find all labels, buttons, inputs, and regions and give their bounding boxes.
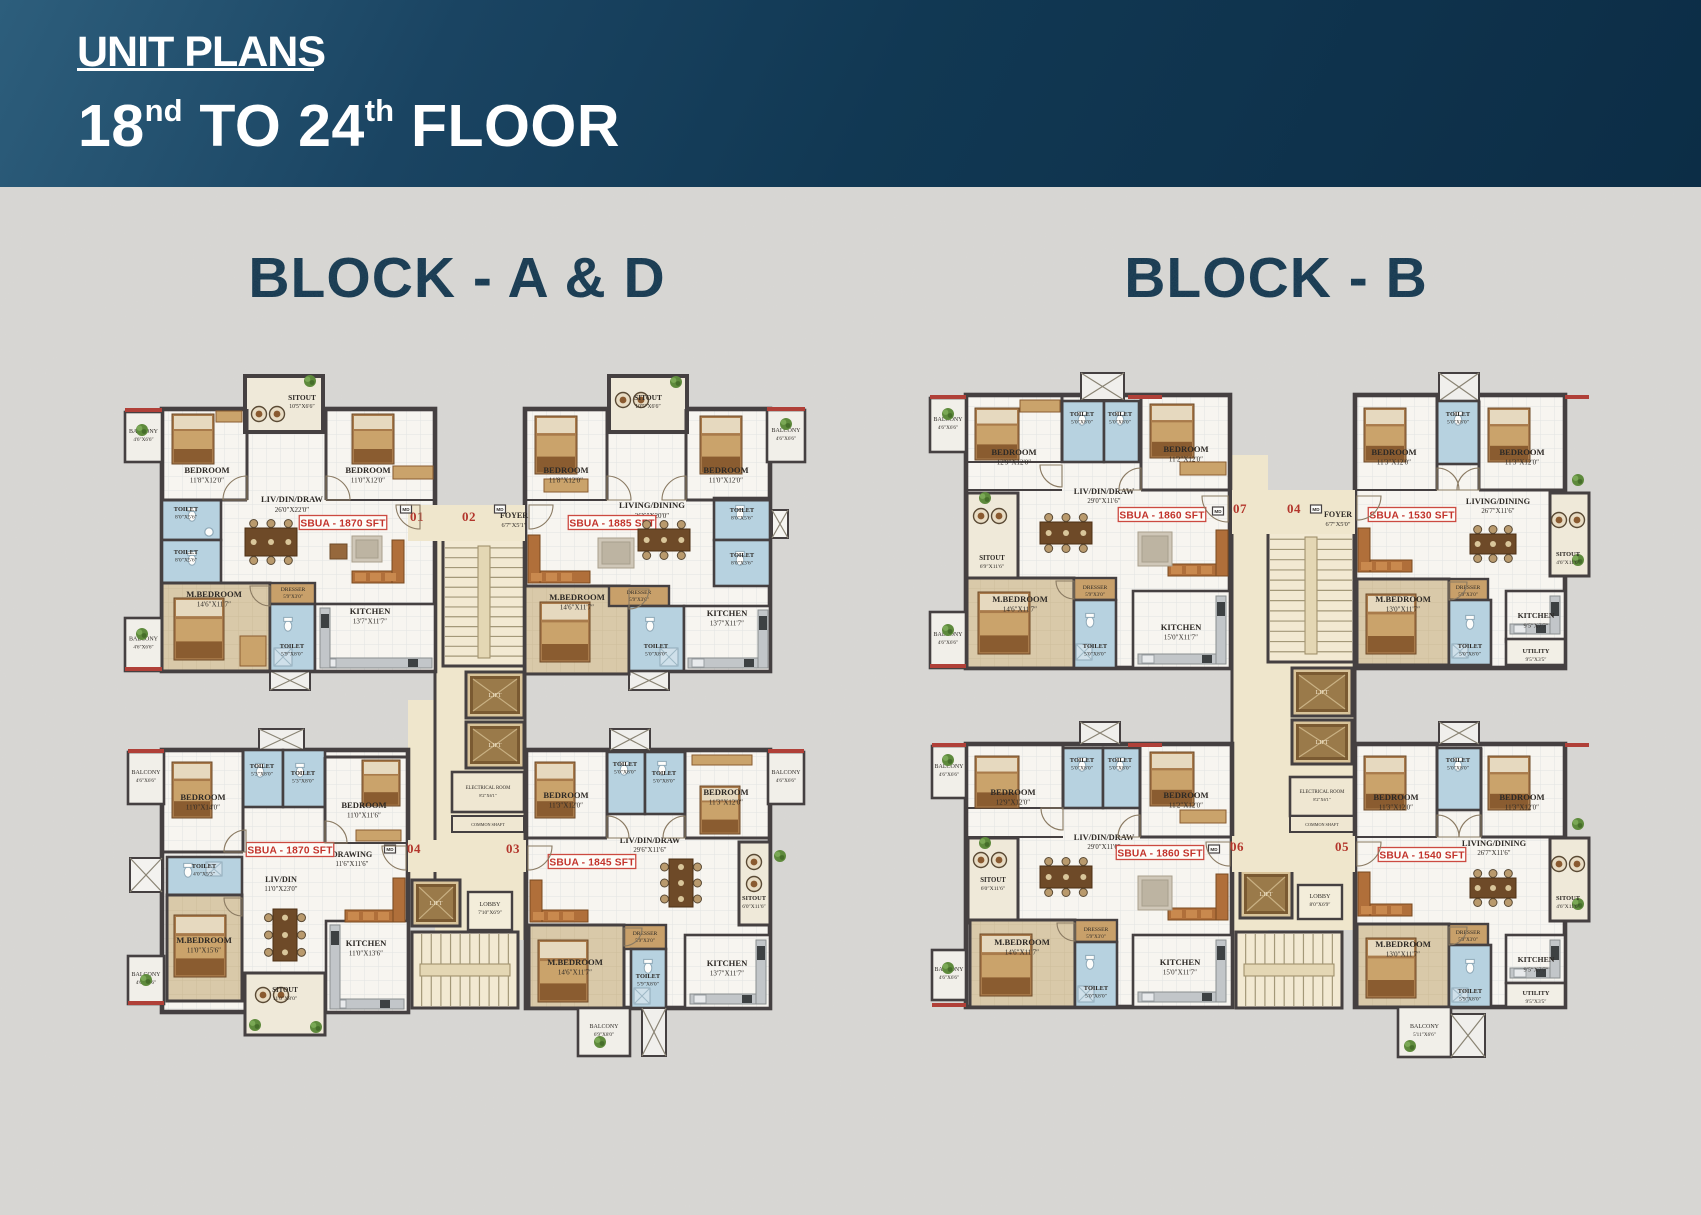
svg-text:KITCHEN: KITCHEN bbox=[346, 938, 387, 948]
svg-text:6'0″X11'6″: 6'0″X11'6″ bbox=[981, 886, 1006, 892]
svg-text:BALCONY: BALCONY bbox=[771, 770, 801, 776]
svg-text:TOILET: TOILET bbox=[1070, 757, 1095, 764]
svg-text:5'0″X8'0″: 5'0″X8'0″ bbox=[1071, 420, 1094, 426]
svg-text:4'6″X6'6″: 4'6″X6'6″ bbox=[939, 772, 959, 778]
svg-text:MD: MD bbox=[386, 847, 394, 852]
svg-text:14'6″X11'7″: 14'6″X11'7″ bbox=[197, 601, 231, 609]
svg-text:M.BEDROOM: M.BEDROOM bbox=[1375, 594, 1431, 604]
svg-text:10'5″X6'6″: 10'5″X6'6″ bbox=[289, 404, 315, 410]
svg-text:13'7″X11'7″: 13'7″X11'7″ bbox=[710, 620, 744, 628]
svg-text:5'0″X8'0″: 5'0″X8'0″ bbox=[1109, 766, 1132, 772]
svg-text:DRESSER: DRESSER bbox=[1456, 585, 1481, 591]
svg-text:6'9″X11'6″: 6'9″X11'6″ bbox=[980, 564, 1005, 570]
svg-text:BEDROOM: BEDROOM bbox=[990, 787, 1035, 797]
svg-text:5'9″X3'0″: 5'9″X3'0″ bbox=[283, 595, 303, 600]
svg-text:5'0″X8'0″: 5'0″X8'0″ bbox=[1109, 420, 1132, 426]
svg-text:DRESSER: DRESSER bbox=[633, 931, 658, 937]
svg-text:4'6″X6'6″: 4'6″X6'6″ bbox=[133, 437, 153, 443]
svg-text:BEDROOM: BEDROOM bbox=[1371, 447, 1416, 457]
svg-text:8'0″X5'6″: 8'0″X5'6″ bbox=[175, 558, 198, 564]
svg-text:TOILET: TOILET bbox=[1084, 985, 1109, 992]
svg-text:BEDROOM: BEDROOM bbox=[1499, 447, 1544, 457]
svg-text:4'6″X6'6″: 4'6″X6'6″ bbox=[136, 778, 156, 784]
svg-text:8'0″X3'6″: 8'0″X3'6″ bbox=[731, 561, 754, 567]
svg-text:TOILET: TOILET bbox=[730, 552, 755, 559]
svg-text:8'0″X5'6″: 8'0″X5'6″ bbox=[175, 515, 198, 521]
svg-text:M.BEDROOM: M.BEDROOM bbox=[186, 589, 242, 599]
svg-text:TOILET: TOILET bbox=[1083, 643, 1108, 650]
svg-text:11'0″X14'0″: 11'0″X14'0″ bbox=[186, 804, 220, 812]
svg-text:8'0″X6'9″: 8'0″X6'9″ bbox=[1309, 902, 1330, 908]
svg-text:SITOUT: SITOUT bbox=[980, 877, 1006, 884]
svg-text:MD: MD bbox=[402, 507, 410, 512]
svg-text:COMMON SHAFT: COMMON SHAFT bbox=[471, 822, 505, 827]
svg-text:04: 04 bbox=[407, 841, 421, 856]
svg-text:SITOUT: SITOUT bbox=[634, 393, 662, 402]
svg-text:11'3″X12'0″: 11'3″X12'0″ bbox=[1505, 804, 1539, 812]
svg-text:TOILET: TOILET bbox=[613, 761, 638, 768]
svg-text:TOILET: TOILET bbox=[730, 507, 755, 514]
svg-text:6'7″X5'0″: 6'7″X5'0″ bbox=[1325, 521, 1350, 528]
svg-text:LIV/DIN/DRAW: LIV/DIN/DRAW bbox=[261, 494, 323, 504]
svg-text:TOILET: TOILET bbox=[174, 549, 199, 556]
svg-text:5'9″X8'0″: 5'9″X8'0″ bbox=[1459, 997, 1482, 1003]
svg-text:5'0″X8'0″: 5'0″X8'0″ bbox=[614, 770, 637, 776]
svg-text:SITOUT: SITOUT bbox=[979, 555, 1005, 562]
svg-text:TOILET: TOILET bbox=[1458, 643, 1483, 650]
svg-text:11'0″X11'6″: 11'0″X11'6″ bbox=[347, 812, 381, 820]
svg-text:UTILITY: UTILITY bbox=[1523, 648, 1550, 655]
svg-text:8'2″X6'1″: 8'2″X6'1″ bbox=[479, 793, 497, 798]
svg-text:26'7″X11'6″: 26'7″X11'6″ bbox=[1481, 508, 1514, 515]
svg-text:BEDROOM: BEDROOM bbox=[184, 465, 229, 475]
svg-text:UTILITY: UTILITY bbox=[1523, 990, 1550, 997]
svg-text:LOBBY: LOBBY bbox=[480, 901, 502, 908]
svg-text:11'0″X15'6″: 11'0″X15'6″ bbox=[187, 947, 221, 955]
svg-text:TOILET: TOILET bbox=[291, 770, 316, 777]
svg-text:13'7″X11'7″: 13'7″X11'7″ bbox=[353, 618, 387, 626]
svg-text:29'6″X11'6″: 29'6″X11'6″ bbox=[633, 847, 666, 854]
svg-text:BEDROOM: BEDROOM bbox=[1499, 792, 1544, 802]
svg-text:ELECTRICAL ROOM: ELECTRICAL ROOM bbox=[1300, 790, 1345, 795]
svg-text:LIFT: LIFT bbox=[1315, 739, 1328, 746]
svg-text:DRESSER: DRESSER bbox=[281, 587, 306, 593]
svg-text:4'6″X11'6″: 4'6″X11'6″ bbox=[1556, 560, 1580, 566]
svg-text:26'0″X22'0″: 26'0″X22'0″ bbox=[275, 506, 309, 514]
svg-text:4'6″X6'6″: 4'6″X6'6″ bbox=[938, 425, 958, 431]
svg-text:03: 03 bbox=[506, 841, 520, 856]
svg-text:LIFT: LIFT bbox=[1315, 689, 1328, 696]
svg-text:5'9″X3'0″: 5'9″X3'0″ bbox=[1085, 593, 1105, 598]
svg-text:DRESSER: DRESSER bbox=[1083, 585, 1108, 591]
svg-text:BEDROOM: BEDROOM bbox=[991, 447, 1036, 457]
svg-text:COMMON SHAFT: COMMON SHAFT bbox=[1305, 822, 1339, 827]
svg-text:5'0″X8'0″: 5'0″X8'0″ bbox=[1085, 994, 1108, 1000]
svg-text:BEDROOM: BEDROOM bbox=[180, 792, 225, 802]
svg-text:LIFT: LIFT bbox=[429, 900, 442, 907]
svg-text:M.BEDROOM: M.BEDROOM bbox=[992, 594, 1048, 604]
svg-text:11'2″X12'0″: 11'2″X12'0″ bbox=[1169, 802, 1203, 810]
svg-text:LIV/DIN/DRAW: LIV/DIN/DRAW bbox=[1074, 487, 1135, 496]
svg-text:4'6″X6'6″: 4'6″X6'6″ bbox=[939, 975, 959, 981]
svg-text:BALCONY: BALCONY bbox=[1410, 1024, 1440, 1030]
svg-text:SITOUT: SITOUT bbox=[1556, 551, 1581, 558]
svg-text:LIVING/DINING: LIVING/DINING bbox=[619, 500, 685, 510]
svg-text:11'3″X12'0″: 11'3″X12'0″ bbox=[1379, 804, 1413, 812]
svg-text:KITCHEN: KITCHEN bbox=[707, 958, 748, 968]
svg-text:SBUA - 1845 SFT: SBUA - 1845 SFT bbox=[549, 857, 635, 868]
svg-text:TOILET: TOILET bbox=[636, 973, 661, 980]
svg-text:FOYER: FOYER bbox=[500, 511, 528, 520]
svg-text:BEDROOM: BEDROOM bbox=[543, 790, 588, 800]
svg-text:DRAWING: DRAWING bbox=[332, 850, 373, 859]
svg-text:5'0″X8'0″: 5'0″X8'0″ bbox=[1071, 766, 1094, 772]
svg-text:BEDROOM: BEDROOM bbox=[543, 465, 588, 475]
svg-text:11'0″X23'0″: 11'0″X23'0″ bbox=[264, 886, 297, 893]
svg-text:11'3″X12'0″: 11'3″X12'0″ bbox=[1505, 459, 1539, 467]
svg-text:TOILET: TOILET bbox=[1446, 411, 1471, 418]
svg-text:15'0″X11'7″: 15'0″X11'7″ bbox=[1163, 969, 1197, 977]
svg-text:BEDROOM: BEDROOM bbox=[1163, 790, 1208, 800]
svg-text:BEDROOM: BEDROOM bbox=[1163, 444, 1208, 454]
svg-text:KITCHEN: KITCHEN bbox=[1518, 611, 1555, 620]
svg-text:4'6″X6'6″: 4'6″X6'6″ bbox=[776, 778, 796, 784]
svg-text:13'0″X11'7″: 13'0″X11'7″ bbox=[1386, 951, 1420, 959]
svg-text:ELECTRICAL ROOM: ELECTRICAL ROOM bbox=[466, 786, 511, 791]
svg-text:10'5″X6'6″: 10'5″X6'6″ bbox=[635, 404, 661, 410]
svg-text:LIVING/DINING: LIVING/DINING bbox=[1466, 497, 1531, 506]
svg-text:TOILET: TOILET bbox=[1070, 411, 1095, 418]
svg-text:12'9″X12'0″: 12'9″X12'0″ bbox=[996, 799, 1030, 807]
svg-text:7'10″X6'9″: 7'10″X6'9″ bbox=[478, 910, 502, 916]
svg-text:05: 05 bbox=[1335, 839, 1349, 854]
svg-text:13'7″X11'7″: 13'7″X11'7″ bbox=[710, 970, 744, 978]
svg-text:5'0″X8'0″: 5'0″X8'0″ bbox=[1459, 652, 1482, 658]
svg-text:12'9″X12'0″: 12'9″X12'0″ bbox=[997, 459, 1031, 467]
svg-text:6'0″X11'6″: 6'0″X11'6″ bbox=[742, 904, 766, 910]
svg-text:11'8″X12'0″: 11'8″X12'0″ bbox=[190, 477, 224, 485]
svg-text:M.BEDROOM: M.BEDROOM bbox=[549, 592, 605, 602]
svg-text:DRESSER: DRESSER bbox=[1456, 930, 1481, 936]
svg-text:11'3″X12'0″: 11'3″X12'0″ bbox=[1377, 459, 1411, 467]
svg-text:TOILET: TOILET bbox=[1108, 411, 1133, 418]
svg-text:4'6″X6'6″: 4'6″X6'6″ bbox=[938, 640, 958, 646]
svg-text:13'0″X11'7″: 13'0″X11'7″ bbox=[1386, 606, 1420, 614]
svg-text:MD: MD bbox=[1214, 509, 1222, 514]
svg-text:5'0″X8'0″: 5'0″X8'0″ bbox=[653, 779, 676, 785]
svg-text:07: 07 bbox=[1233, 501, 1247, 516]
svg-text:SBUA - 1870 SFT: SBUA - 1870 SFT bbox=[247, 845, 333, 856]
svg-text:11'0″X12'0″: 11'0″X12'0″ bbox=[709, 477, 743, 485]
svg-text:M.BEDROOM: M.BEDROOM bbox=[1375, 939, 1431, 949]
svg-text:14'6″X11'7″: 14'6″X11'7″ bbox=[558, 969, 592, 977]
svg-text:11'8″X12'0″: 11'8″X12'0″ bbox=[549, 477, 583, 485]
svg-text:9'5″X3'5″: 9'5″X3'5″ bbox=[1525, 999, 1546, 1005]
svg-text:TOILET: TOILET bbox=[1458, 988, 1483, 995]
svg-text:11'0″X12'0″: 11'0″X12'0″ bbox=[351, 477, 385, 485]
svg-text:11'3″X12'0″: 11'3″X12'0″ bbox=[709, 799, 743, 807]
svg-text:BEDROOM: BEDROOM bbox=[1373, 792, 1418, 802]
svg-text:5'0″X8'0″: 5'0″X8'0″ bbox=[1084, 652, 1107, 658]
svg-text:BEDROOM: BEDROOM bbox=[345, 465, 390, 475]
svg-text:SITOUT: SITOUT bbox=[272, 987, 298, 994]
svg-text:11'3″X12'0″: 11'3″X12'0″ bbox=[549, 802, 583, 810]
svg-text:MD: MD bbox=[1210, 847, 1218, 852]
svg-text:TOILET: TOILET bbox=[1446, 757, 1471, 764]
svg-text:9'5″X3'5″: 9'5″X3'5″ bbox=[1525, 657, 1546, 663]
svg-text:4'0″X5'3″: 4'0″X5'3″ bbox=[193, 872, 216, 878]
svg-text:LIFT: LIFT bbox=[488, 742, 501, 749]
svg-text:5'3″X8'0″: 5'3″X8'0″ bbox=[251, 772, 274, 778]
svg-text:8'2″X6'1″: 8'2″X6'1″ bbox=[1313, 797, 1331, 802]
svg-text:06: 06 bbox=[1230, 839, 1244, 854]
svg-text:11'0″X8'0″: 11'0″X8'0″ bbox=[273, 996, 298, 1002]
svg-text:KITCHEN: KITCHEN bbox=[350, 606, 391, 616]
svg-text:SBUA - 1860 SFT: SBUA - 1860 SFT bbox=[1117, 848, 1203, 859]
svg-text:KITCHEN: KITCHEN bbox=[1518, 955, 1555, 964]
svg-text:SITOUT: SITOUT bbox=[288, 393, 316, 402]
svg-text:SITOUT: SITOUT bbox=[742, 895, 767, 902]
svg-text:4'6″X6'6″: 4'6″X6'6″ bbox=[776, 436, 796, 442]
svg-text:14'6″X11'7″: 14'6″X11'7″ bbox=[560, 604, 594, 612]
svg-text:8'0″X5'6″: 8'0″X5'6″ bbox=[731, 516, 754, 522]
svg-text:DRESSER: DRESSER bbox=[1084, 927, 1109, 933]
svg-text:M.BEDROOM: M.BEDROOM bbox=[176, 935, 232, 945]
svg-text:MD: MD bbox=[1312, 507, 1320, 512]
svg-text:TOILET: TOILET bbox=[1108, 757, 1133, 764]
svg-text:M.BEDROOM: M.BEDROOM bbox=[994, 937, 1050, 947]
svg-text:5'9″X8'0″: 5'9″X8'0″ bbox=[281, 652, 304, 658]
svg-text:15'0″X11'7″: 15'0″X11'7″ bbox=[1164, 634, 1198, 642]
svg-text:11'6″X11'6″: 11'6″X11'6″ bbox=[336, 861, 369, 868]
svg-text:KITCHEN: KITCHEN bbox=[1160, 957, 1201, 967]
svg-text:BEDROOM: BEDROOM bbox=[703, 787, 748, 797]
svg-text:SBUA - 1870 SFT: SBUA - 1870 SFT bbox=[300, 518, 386, 529]
svg-text:TOILET: TOILET bbox=[644, 643, 669, 650]
svg-text:FOYER: FOYER bbox=[1324, 510, 1352, 519]
svg-text:TOILET: TOILET bbox=[280, 643, 305, 650]
svg-text:LIFT: LIFT bbox=[488, 692, 501, 699]
svg-text:9'5″X7'7″: 9'5″X7'7″ bbox=[1523, 623, 1548, 630]
svg-text:14'6″X11'7″: 14'6″X11'7″ bbox=[1005, 949, 1039, 957]
svg-text:LIV/DIN: LIV/DIN bbox=[265, 875, 297, 884]
svg-text:SITOUT: SITOUT bbox=[1556, 895, 1581, 902]
svg-text:M.BEDROOM: M.BEDROOM bbox=[547, 957, 603, 967]
svg-text:11'2″X12'0″: 11'2″X12'0″ bbox=[1169, 456, 1203, 464]
svg-text:SBUA - 1540 SFT: SBUA - 1540 SFT bbox=[1379, 850, 1465, 861]
svg-text:9'5″X7'7″: 9'5″X7'7″ bbox=[1523, 967, 1548, 974]
svg-text:LOBBY: LOBBY bbox=[1310, 893, 1332, 900]
svg-text:01: 01 bbox=[410, 509, 424, 524]
svg-text:11'0″X13'6″: 11'0″X13'6″ bbox=[349, 950, 383, 958]
svg-text:4'6″X6'6″: 4'6″X6'6″ bbox=[133, 645, 153, 651]
svg-text:5'11″X6'6″: 5'11″X6'6″ bbox=[1413, 1032, 1436, 1038]
svg-text:LIFT: LIFT bbox=[1259, 891, 1272, 898]
svg-text:SBUA - 1530 SFT: SBUA - 1530 SFT bbox=[1369, 510, 1455, 521]
svg-text:TOILET: TOILET bbox=[250, 763, 275, 770]
svg-text:5'9″X3'0″: 5'9″X3'0″ bbox=[1086, 935, 1106, 940]
svg-text:5'0″X8'0″: 5'0″X8'0″ bbox=[645, 652, 668, 658]
svg-text:4'6″X11'6″: 4'6″X11'6″ bbox=[1556, 904, 1580, 910]
svg-text:5'0″X8'0″: 5'0″X8'0″ bbox=[1447, 766, 1470, 772]
svg-text:14'6″X11'7″: 14'6″X11'7″ bbox=[1003, 606, 1037, 614]
svg-text:29'0″X11'6″: 29'0″X11'6″ bbox=[1087, 498, 1120, 505]
svg-text:TOILET: TOILET bbox=[174, 506, 199, 513]
svg-text:04: 04 bbox=[1287, 501, 1301, 516]
svg-text:26'7″X11'6″: 26'7″X11'6″ bbox=[1477, 850, 1510, 857]
svg-text:TOILET: TOILET bbox=[652, 770, 677, 777]
svg-text:BALCONY: BALCONY bbox=[589, 1024, 619, 1030]
svg-text:BEDROOM: BEDROOM bbox=[703, 465, 748, 475]
svg-text:5'0″X8'0″: 5'0″X8'0″ bbox=[1447, 420, 1470, 426]
svg-text:KITCHEN: KITCHEN bbox=[707, 608, 748, 618]
svg-text:SBUA - 1860 SFT: SBUA - 1860 SFT bbox=[1119, 510, 1205, 521]
svg-text:6'7″X5'1″: 6'7″X5'1″ bbox=[501, 522, 526, 529]
svg-text:BALCONY: BALCONY bbox=[131, 770, 161, 776]
svg-text:BEDROOM: BEDROOM bbox=[341, 800, 386, 810]
svg-text:LIVING/DINING: LIVING/DINING bbox=[1462, 839, 1527, 848]
svg-text:TOILET: TOILET bbox=[192, 863, 217, 870]
svg-text:5'9″X8'0″: 5'9″X8'0″ bbox=[637, 982, 660, 988]
svg-text:02: 02 bbox=[462, 509, 476, 524]
svg-text:KITCHEN: KITCHEN bbox=[1161, 622, 1202, 632]
svg-text:5'3″X8'0″: 5'3″X8'0″ bbox=[292, 779, 315, 785]
